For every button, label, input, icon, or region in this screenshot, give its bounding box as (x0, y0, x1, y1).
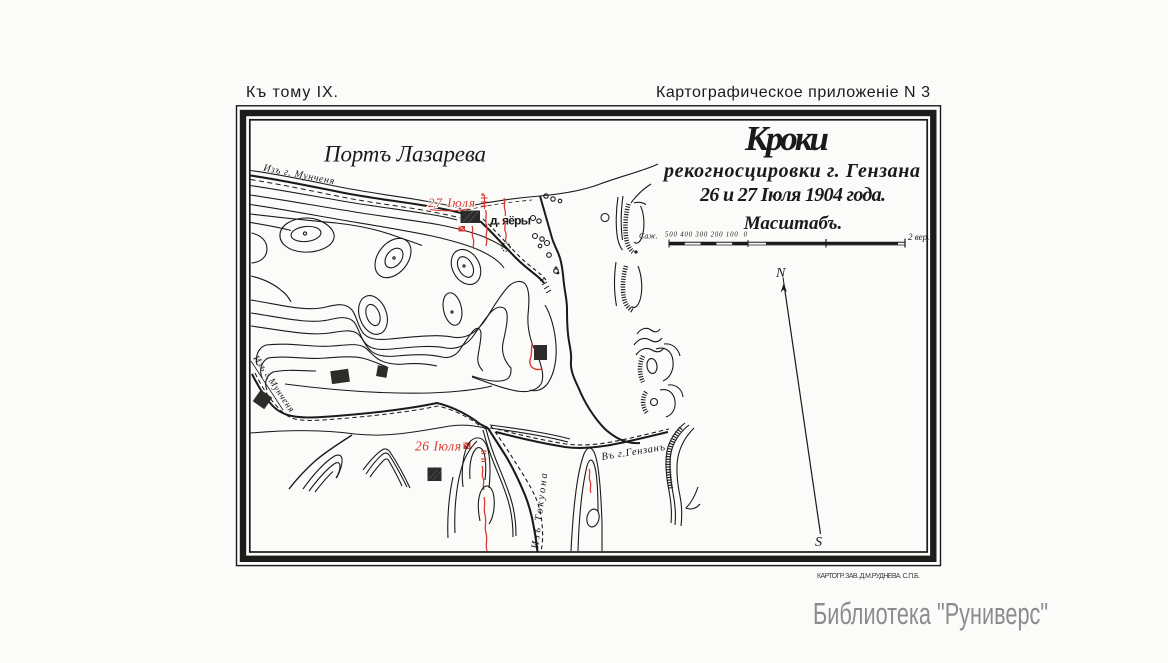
svg-text:Картографическое приложеніе N: Картографическое приложеніе N 3 (656, 84, 930, 101)
svg-text:S: S (815, 535, 822, 550)
svg-text:Портъ Лазарева: Портъ Лазарева (323, 142, 486, 167)
svg-text:Къ тому IX.: Къ тому IX. (246, 84, 339, 101)
svg-text:27 Іюля: 27 Іюля (428, 195, 475, 210)
svg-text:рекогносцировки г. Гензана: рекогносцировки г. Гензана (662, 160, 920, 182)
svg-text:КАРТОГР. ЗАВ. Д.М.РУДНЕВА. С.П: КАРТОГР. ЗАВ. Д.М.РУДНЕВА. С.П.Б. (817, 573, 920, 580)
svg-text:26 Іюля: 26 Іюля (415, 439, 461, 454)
svg-text:26 и 27 Іюля 1904 года.: 26 и 27 Іюля 1904 года. (699, 184, 886, 206)
svg-text:2 вер.: 2 вер. (908, 232, 929, 242)
svg-text:Масштабъ.: Масштабъ. (743, 213, 842, 234)
svg-text:Кроки: Кроки (744, 119, 829, 158)
svg-text:Библиотека "Руниверс": Библиотека "Руниверс" (813, 596, 1048, 631)
svg-text:д. яёры: д. яёры (490, 214, 531, 228)
svg-text:N: N (775, 266, 786, 281)
svg-text:500 400 300 200 100 0: 500 400 300 200 100 0 (665, 232, 748, 239)
